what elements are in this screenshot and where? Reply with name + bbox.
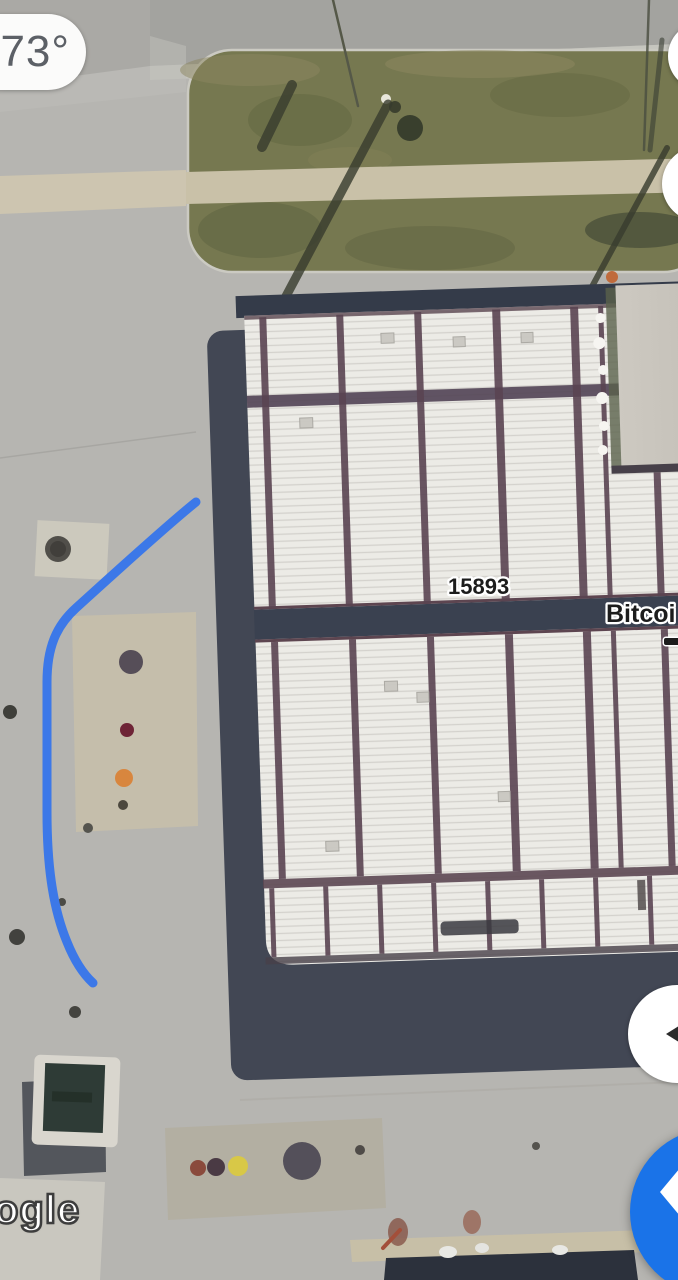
- google-maps-satellite-view[interactable]: 15893 Bitcoi 73° ogle: [0, 0, 678, 1280]
- satellite-map[interactable]: 15893 Bitcoi: [0, 0, 678, 1280]
- poi-label[interactable]: Bitcoi: [606, 600, 675, 628]
- building-number-label: 15893: [448, 574, 509, 599]
- poi-label-fragment: [664, 638, 678, 645]
- temperature-text: 73°: [0, 27, 70, 77]
- triangle-left-icon: [628, 985, 678, 1083]
- utility-structure: [22, 1055, 121, 1176]
- grass-median: [180, 50, 678, 272]
- directions-fab[interactable]: [630, 1128, 678, 1280]
- side-panel-arrow-button[interactable]: [628, 985, 678, 1083]
- google-watermark: ogle: [0, 1188, 80, 1233]
- weather-chip[interactable]: 73°: [0, 14, 86, 90]
